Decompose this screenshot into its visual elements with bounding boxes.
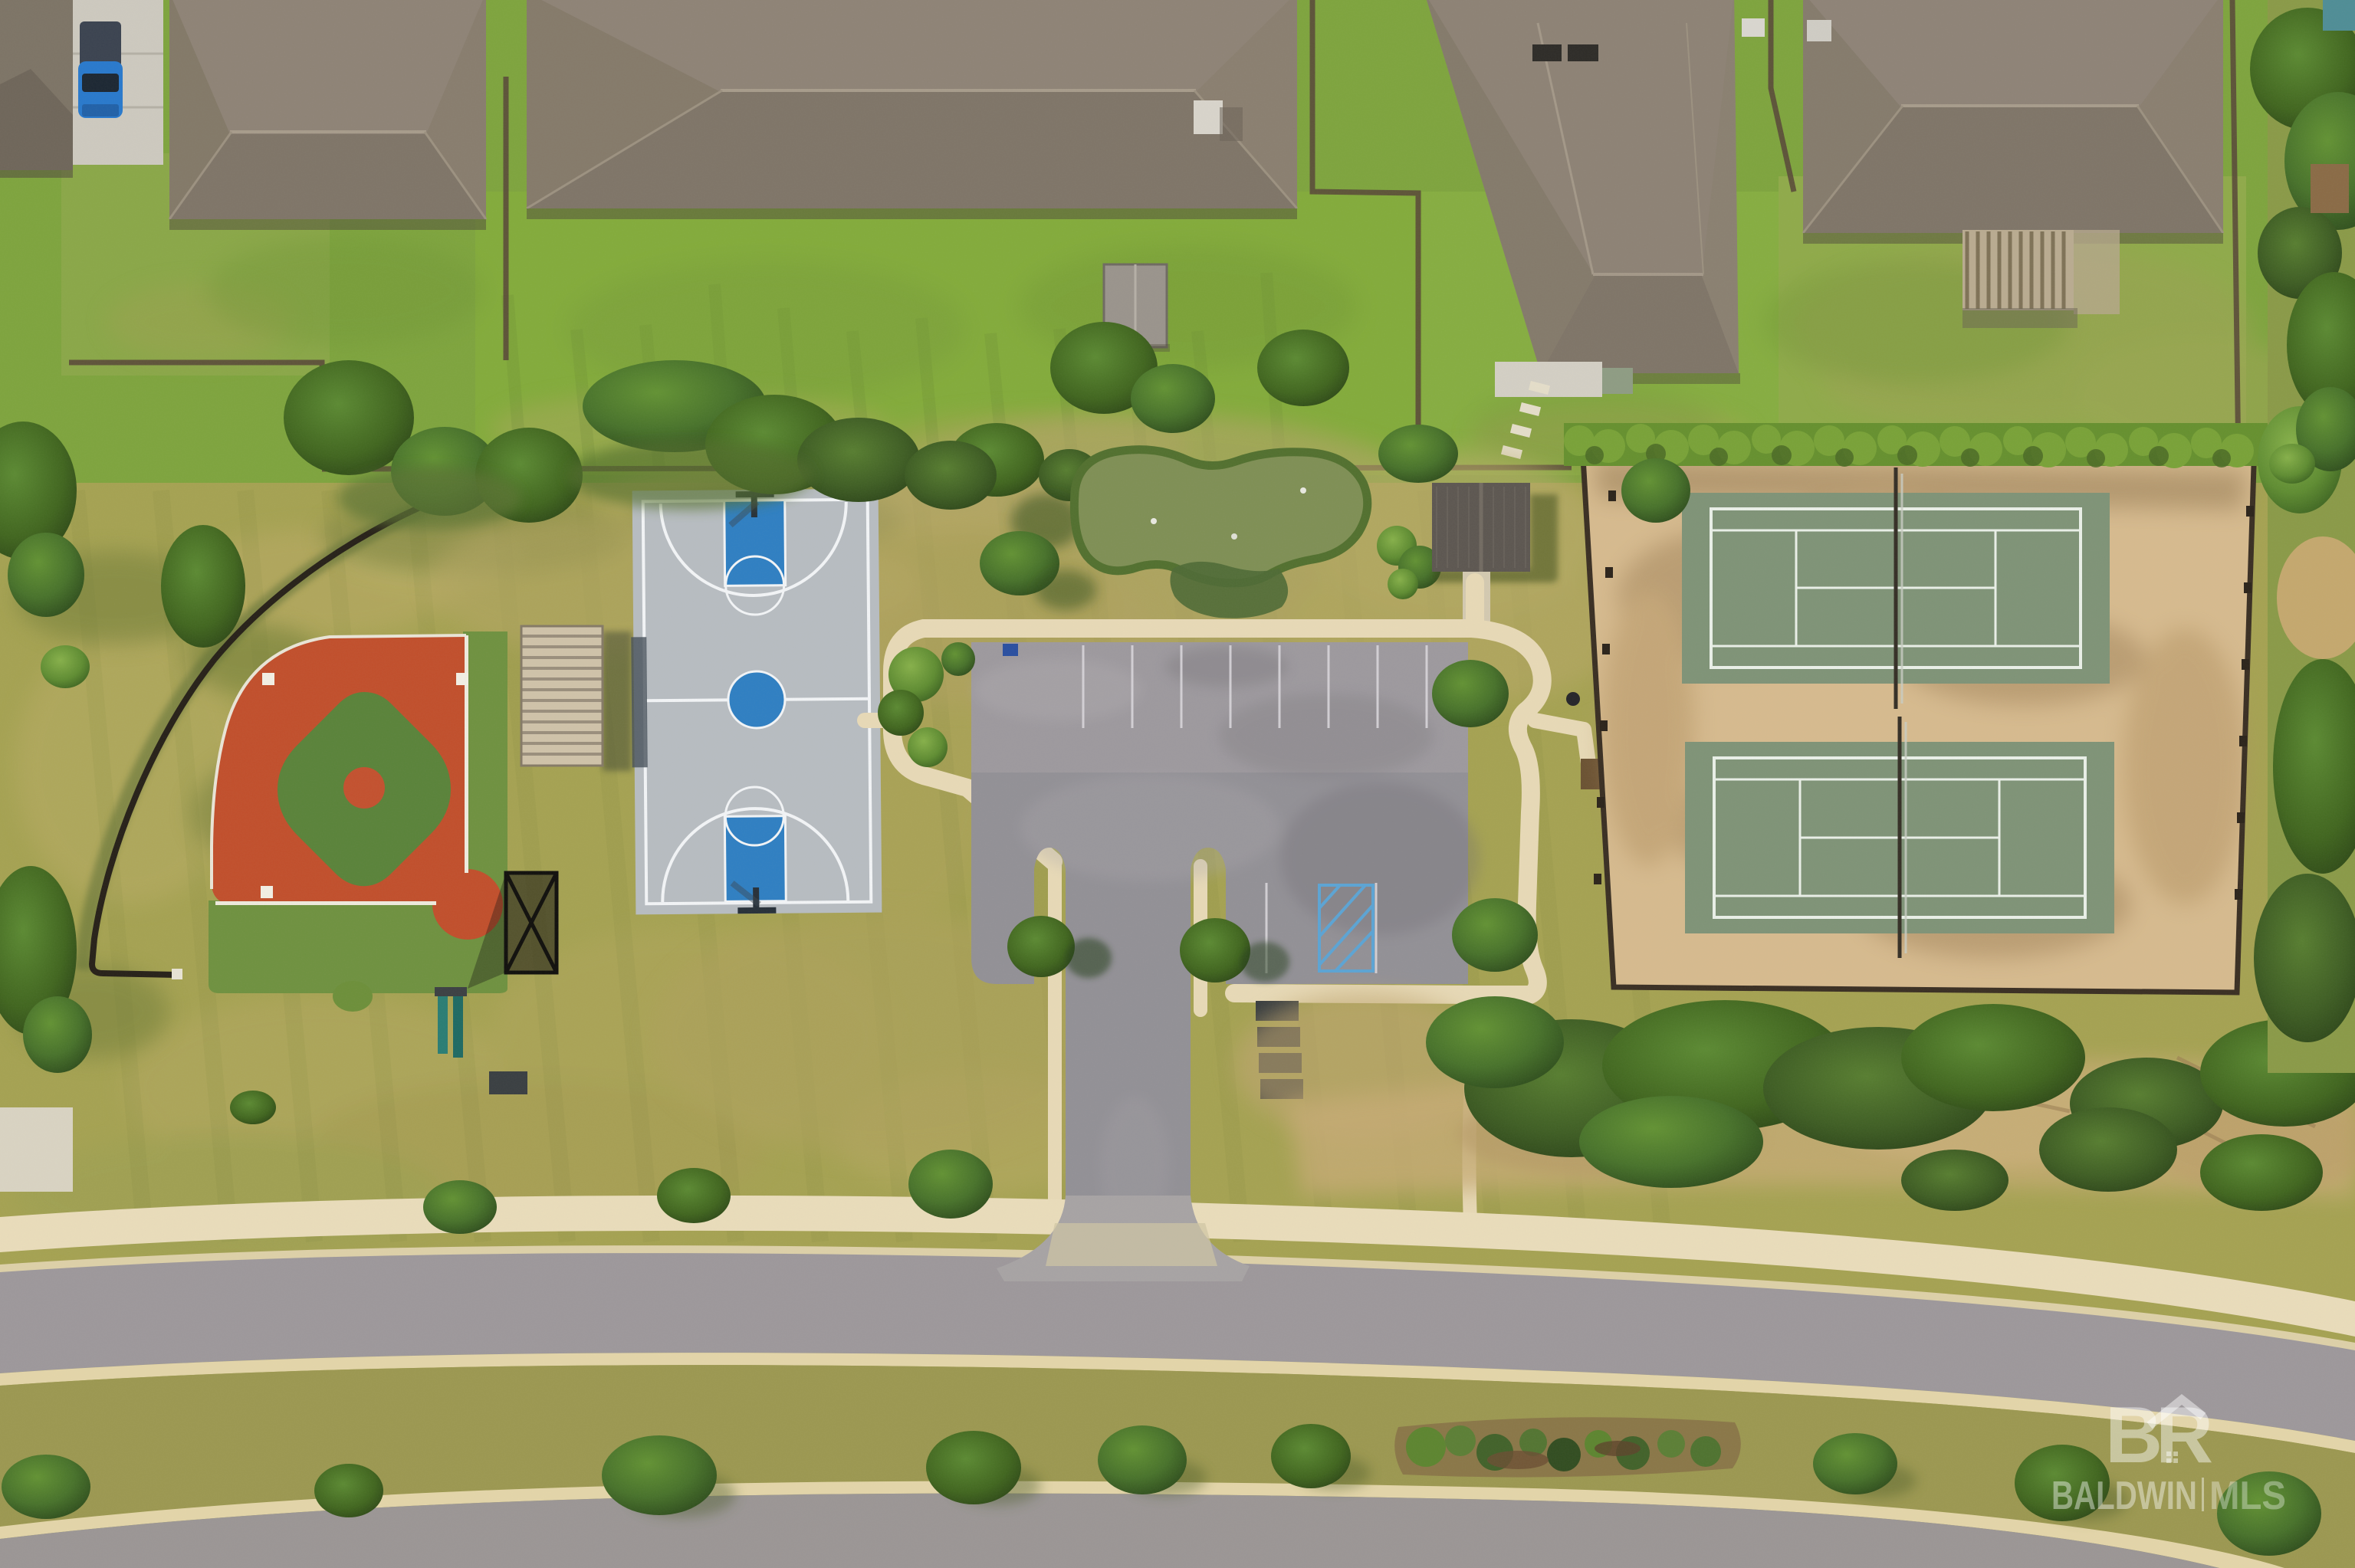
- svg-text:B: B: [2105, 1391, 2161, 1480]
- svg-text:BALDWIN: BALDWIN: [2051, 1474, 2197, 1518]
- svg-text:MLS: MLS: [2209, 1474, 2286, 1518]
